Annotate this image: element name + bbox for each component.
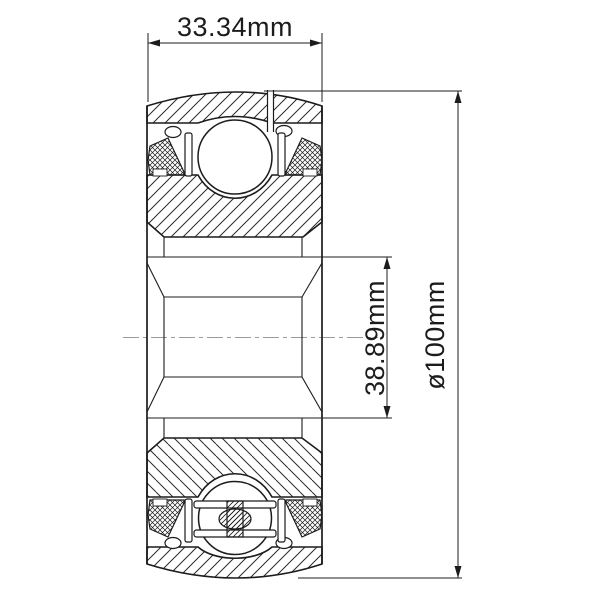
seal-lip-detail <box>303 169 317 176</box>
width-dimension-label: 33.34mm <box>177 12 293 42</box>
bearing-drawing-page: 33.34mm 38.89mm ø100mm <box>0 0 600 600</box>
seal-lip-detail <box>303 499 317 506</box>
cage-rivet-head <box>219 509 251 529</box>
od-dimension-label: ø100mm <box>420 280 450 390</box>
arrowhead-down <box>384 406 391 418</box>
slinger-plate <box>185 499 192 542</box>
seal-lip-detail <box>153 499 167 506</box>
arrowhead-left <box>148 40 160 47</box>
arrowhead-up <box>455 91 462 103</box>
seal-top-right <box>276 126 322 177</box>
bearing-technical-drawing: 33.34mm 38.89mm ø100mm <box>0 0 600 600</box>
seal-bottom-left <box>148 499 192 549</box>
seal-retainer-curl <box>165 538 181 549</box>
seal-lip-detail <box>153 169 167 176</box>
seal-bottom-right <box>276 499 322 549</box>
slinger-plate <box>185 133 192 176</box>
seal-retainer-curl <box>165 127 181 138</box>
slinger-plate <box>278 499 285 542</box>
outer-ring-top-section <box>147 92 322 123</box>
seal-top-left <box>148 127 192 177</box>
arrowhead-right <box>310 40 322 47</box>
lubrication-hole <box>268 86 274 132</box>
arrowhead-down <box>455 566 462 578</box>
dimension-width: 33.34mm <box>148 12 322 102</box>
arrowhead-up <box>384 257 391 269</box>
ball-top <box>198 120 272 194</box>
ball-cage-assembly <box>194 482 276 555</box>
bore-dimension-label: 38.89mm <box>360 280 390 396</box>
slinger-plate <box>278 133 285 176</box>
